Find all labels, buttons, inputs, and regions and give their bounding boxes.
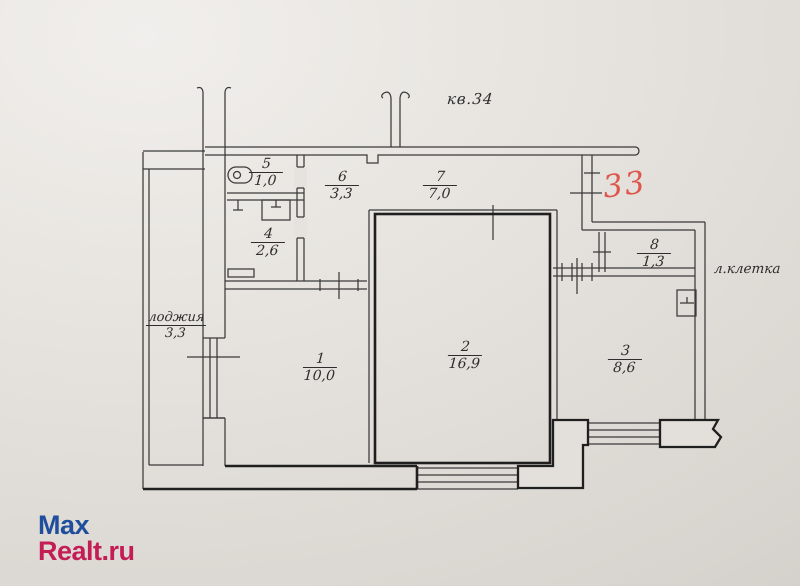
vent-pipe-icon — [382, 92, 410, 147]
cistern-icon — [262, 200, 290, 220]
room-label-2: 2 16,9 — [440, 336, 491, 372]
wall-break-symbol — [660, 420, 721, 447]
bottom-step-pier — [518, 420, 588, 488]
door-tick-symbol — [570, 173, 602, 193]
loggia-area: 3,3 — [144, 326, 207, 342]
electrical-panel-icon — [677, 290, 696, 316]
window-symbol-balcony — [187, 338, 240, 418]
room-label-8: 8 1,3 — [629, 234, 680, 270]
site-watermark: Max Realt.ru — [38, 512, 135, 564]
room-label-3: 3 8,6 — [600, 340, 651, 376]
loggia-name: лоджия — [146, 310, 207, 326]
toilet-icon — [233, 200, 243, 210]
fixtures — [228, 92, 696, 316]
room-label-5: 5 1,0 — [241, 153, 292, 189]
wall-continuation-curl — [197, 88, 231, 93]
room-label-7: 7 7,0 — [415, 166, 466, 202]
room-label-1: 1 10,0 — [295, 348, 346, 384]
floor-plan-drawing — [0, 0, 800, 586]
stairwell-label: л.клетка — [713, 261, 781, 277]
watermark-line2: Realt.ru — [38, 538, 135, 564]
room-label-6: 6 3,3 — [317, 166, 368, 202]
bottom-exterior-wall — [143, 466, 417, 489]
watermark-line1: Max — [38, 512, 135, 538]
walls-thin — [143, 88, 705, 490]
door-tick-symbol — [320, 272, 358, 299]
window-symbol — [417, 468, 518, 489]
room-label-4: 4 2,6 — [243, 223, 294, 259]
window-symbol — [588, 423, 660, 444]
apartment-number-label: кв.34 — [446, 90, 494, 108]
handwritten-apartment-number: 33 — [601, 164, 649, 205]
floor-plan-photo: кв.34 л.клетка 33 лоджия 3,3 1 10,0 2 16… — [0, 0, 800, 586]
loggia-label: лоджия 3,3 — [144, 306, 209, 342]
bath-step-box — [228, 269, 254, 277]
bathroom-door-openings — [294, 167, 307, 238]
